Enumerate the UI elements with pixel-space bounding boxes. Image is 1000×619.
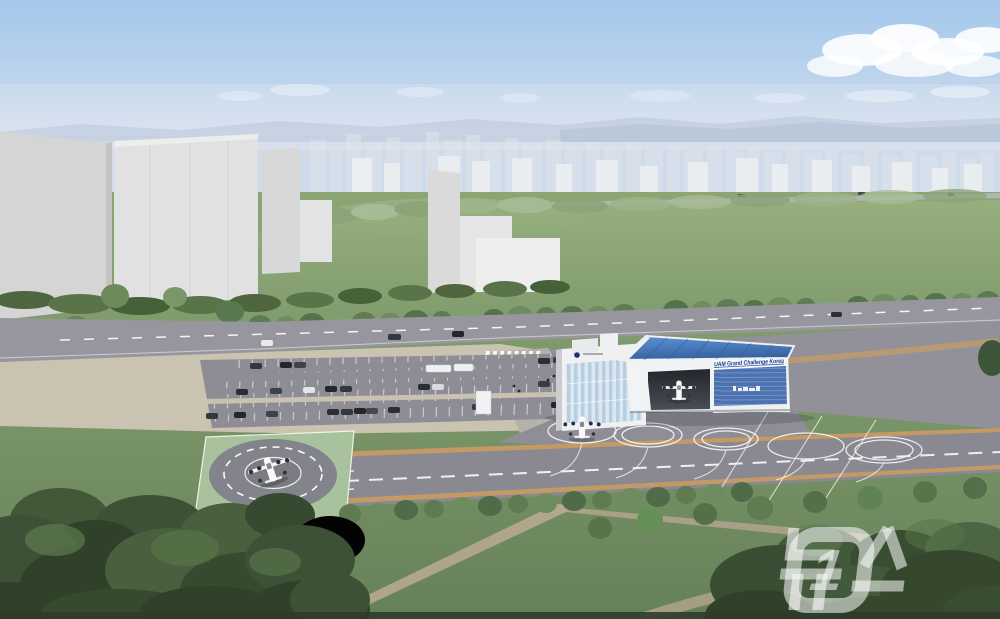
vertiport-facility: UAM Grand Challenge Korea (545, 333, 815, 431)
hangar-side-panel (712, 366, 787, 409)
hangar: UAM Grand Challenge Korea (620, 336, 794, 413)
kiosk (476, 391, 491, 414)
uam-vertiport-rendering: UAM Grand Challenge Korea (0, 0, 1000, 619)
bottom-shadow-strip (0, 612, 1000, 619)
rendering-canvas: UAM Grand Challenge Korea (0, 0, 1000, 619)
